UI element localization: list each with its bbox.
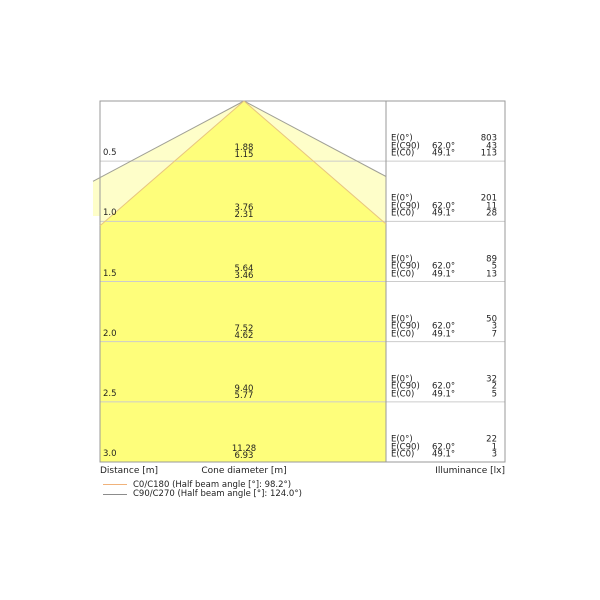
- legend-label-c90c270: C90/C270 (Half beam angle [°]: 124.0°): [133, 489, 302, 499]
- legend: C0/C180 (Half beam angle [°]: 98.2°) C90…: [103, 480, 302, 499]
- cone-diagram-canvas: [0, 0, 600, 600]
- axis-label-illuminance: Illuminance [lx]: [435, 466, 505, 476]
- cone-c90-overflow: [93, 178, 100, 216]
- axis-label-cone-diameter: Cone diameter [m]: [201, 466, 286, 476]
- legend-item-c90c270: C90/C270 (Half beam angle [°]: 124.0°): [103, 490, 302, 500]
- legend-line-c90c270-icon: [103, 494, 127, 495]
- axis-label-distance: Distance [m]: [100, 466, 158, 476]
- legend-label-c0c180: C0/C180 (Half beam angle [°]: 98.2°): [133, 480, 291, 490]
- legend-item-c0c180: C0/C180 (Half beam angle [°]: 98.2°): [103, 480, 302, 490]
- cone-diagram: 0.51.881.15E(0°)803E(C90)62.0°43E(C0)49.…: [0, 0, 600, 600]
- legend-line-c0c180-icon: [103, 484, 127, 485]
